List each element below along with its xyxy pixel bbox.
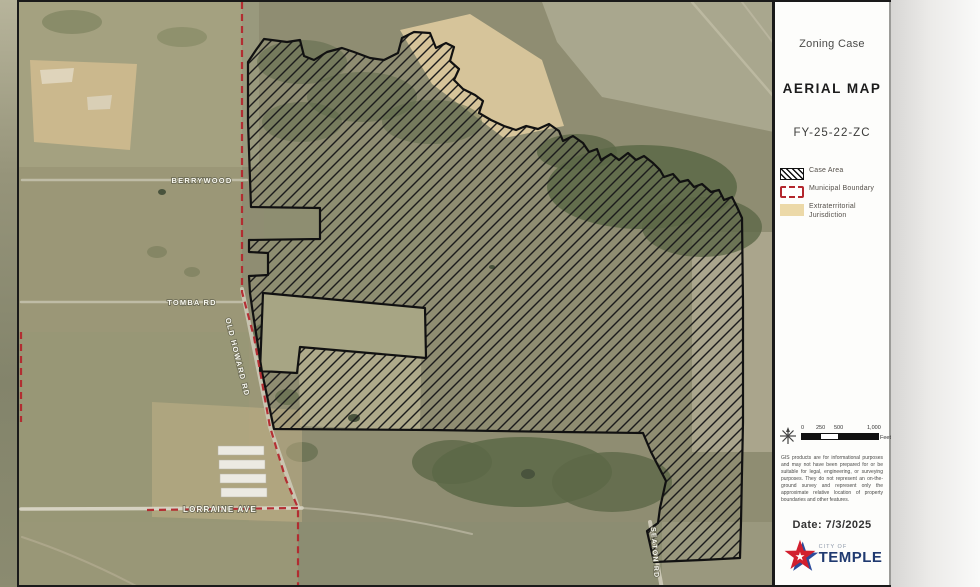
blurred-left-band [0,0,17,587]
scale-block: 0 250 500 1,000 Feet [779,425,885,447]
etj-swatch-icon [780,204,804,216]
scale-bar-segments [801,433,879,440]
legend-label: Municipal Boundary [809,185,874,194]
scale-tick: 1,000 [867,425,881,431]
legend-item-case-area: Case Area [780,167,884,180]
scale-unit-label: Feet [880,435,891,441]
legend-item-etj: Extraterritorial Jurisdiction [780,203,884,221]
logo-text: CITY OF TEMPLE [819,545,883,566]
scale-tick: 250 [816,425,825,431]
scale-segment [839,434,878,439]
north-arrow-icon [779,427,797,445]
street-label-berrywood: BERRYWOOD [172,176,233,185]
legend-item-municipal-boundary: Municipal Boundary [780,185,884,198]
map-info-panel: Zoning Case AERIAL MAP FY-25-22-ZC Case … [772,2,891,585]
news-graphic-stage: BERRYWOOD TOMBA RD OLD HOWARD RD LORRAIN… [0,0,980,587]
map-name-title: AERIAL MAP [783,81,882,96]
map-date: Date: 7/3/2025 [793,519,872,531]
scale-segment [802,434,820,439]
logo-city-name: TEMPLE [819,550,883,565]
scale-tick: 0 [801,425,804,431]
street-label-lorraine-ave: LORRAINE AVE [183,505,257,514]
legend: Case Area Municipal Boundary Extraterrit… [780,167,884,221]
street-label-tomba-rd: TOMBA RD [167,298,217,307]
case-type-title: Zoning Case [799,38,865,50]
temple-star-icon: ★ [782,535,818,575]
case-number: FY-25-22-ZC [793,127,870,139]
scale-segment [820,434,839,439]
legend-label: Extraterritorial Jurisdiction [809,203,884,221]
blurred-right-band [891,0,980,587]
logo-star-glyph: ★ [794,550,804,563]
gis-disclaimer-text: GIS products are for informational purpo… [781,455,883,504]
municipal-boundary-swatch-icon [780,186,804,198]
legend-label: Case Area [809,167,844,176]
aerial-map-svg: BERRYWOOD TOMBA RD OLD HOWARD RD LORRAIN… [19,2,772,585]
scale-tick: 500 [834,425,843,431]
zoning-map-document: BERRYWOOD TOMBA RD OLD HOWARD RD LORRAIN… [17,0,891,587]
scale-bar: 0 250 500 1,000 Feet [801,425,885,447]
city-of-temple-logo: ★ CITY OF TEMPLE [782,535,883,575]
aerial-map-canvas: BERRYWOOD TOMBA RD OLD HOWARD RD LORRAIN… [17,2,772,585]
case-area-swatch-icon [780,168,804,180]
